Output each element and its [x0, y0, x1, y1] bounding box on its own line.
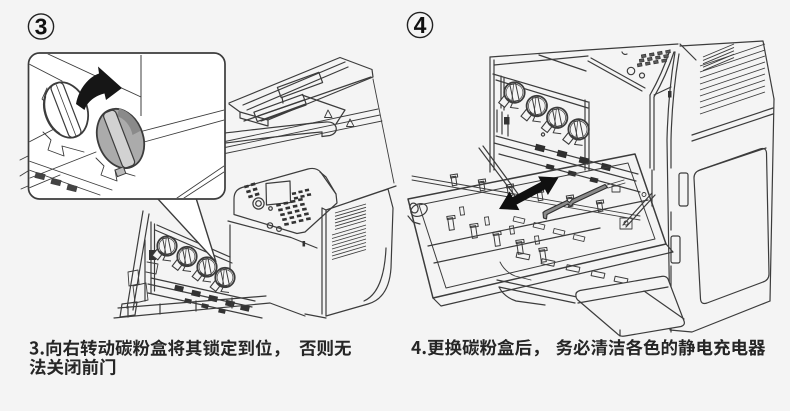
svg-text:4: 4	[414, 12, 427, 38]
svg-text:3: 3	[35, 14, 48, 40]
